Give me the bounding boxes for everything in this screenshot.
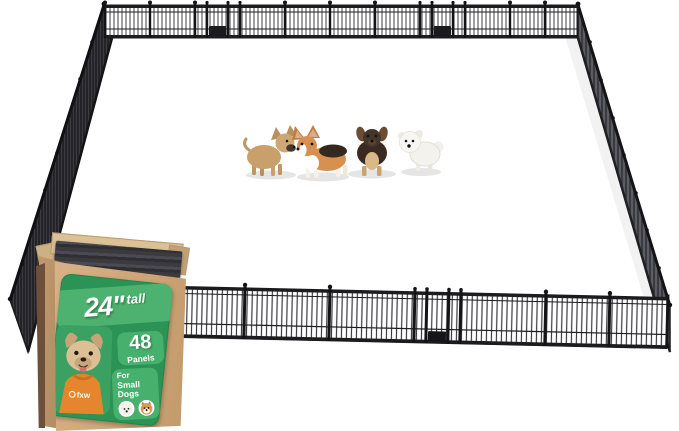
playpen-top-side: [103, 1, 577, 39]
panel-count-caption: Panels: [127, 352, 155, 365]
french-bulldog-illustration: fxw: [53, 325, 112, 415]
gate-latch-plate-top-2: [434, 26, 451, 36]
shiba-photo-icon: [138, 399, 155, 416]
size-value: 24": [83, 290, 125, 324]
gate-latch-plate-bottom: [428, 331, 446, 341]
label-lower-row: fxw 48 Panels For Small Dogs: [53, 323, 164, 421]
audience-line2: Small Dogs: [117, 379, 154, 400]
product-photo-stage: 24" tall: [0, 0, 679, 431]
dog-bichon: [398, 130, 444, 176]
label-right-column: 48 Panels For Small Dogs: [110, 329, 165, 421]
pomeranian-photo-icon: [118, 400, 135, 417]
audience-tile: For Small Dogs: [111, 367, 160, 421]
size-suffix: tall: [126, 290, 146, 306]
brand-name: fxw: [77, 391, 92, 400]
dog-dachshund: [348, 126, 396, 179]
box-side-shadow: [36, 263, 45, 428]
playpen-bottom-side: [157, 281, 668, 349]
dog-corgi: [292, 125, 349, 182]
size-banner: 24" tall: [55, 283, 174, 329]
panel-count-tile: 48 Panels: [117, 330, 165, 365]
product-box: 24" tall: [36, 236, 192, 431]
gate-latch-plate-top-1: [209, 26, 226, 36]
box-front-panel: 24" tall: [52, 260, 186, 431]
box-label: 24" tall: [47, 273, 173, 427]
panel-count: 48: [129, 332, 152, 353]
bulldog-photo: fxw: [53, 325, 112, 415]
dog-chihuahua: [245, 125, 297, 180]
small-dog-photos: [118, 399, 155, 417]
